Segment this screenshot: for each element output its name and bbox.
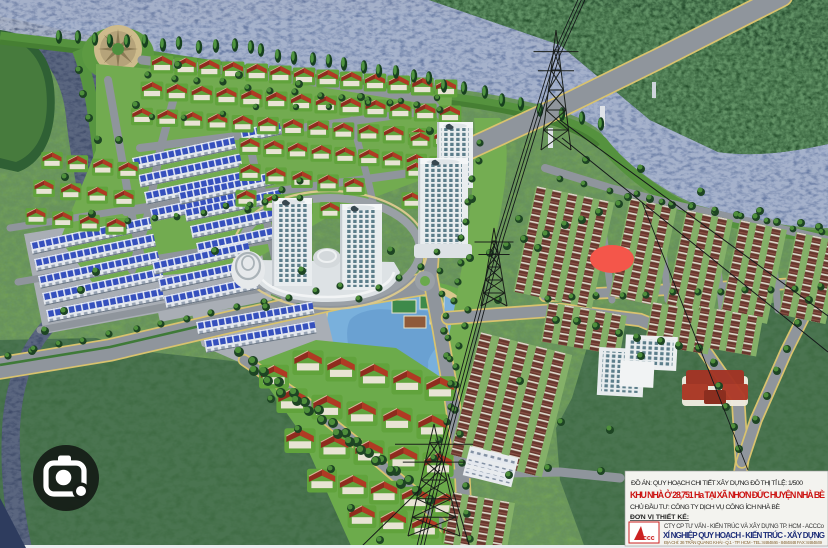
svg-text:ccc: ccc [643, 535, 655, 542]
svg-text:XÍ NGHIỆP QUY HOẠCH - KIẾN TRÚ: XÍ NGHIỆP QUY HOẠCH - KIẾN TRÚC - XÂY DỰ… [663, 530, 825, 540]
svg-text:CTY CP TƯ VẤN - KIẾN TRÚC VÀ X: CTY CP TƯ VẤN - KIẾN TRÚC VÀ XÂY DỰNG TP… [664, 523, 825, 530]
svg-text:KHU NHÀ Ở 28,751 Ha TẠI XÃ NHƠ: KHU NHÀ Ở 28,751 Ha TẠI XÃ NHƠN ĐỨC HUYỆ… [630, 489, 825, 500]
svg-text:ĐỊA CHỈ: 36 TRẦN QUANG KHẢI -: ĐỊA CHỈ: 36 TRẦN QUANG KHẢI - Q.1 - TP. … [664, 539, 822, 545]
